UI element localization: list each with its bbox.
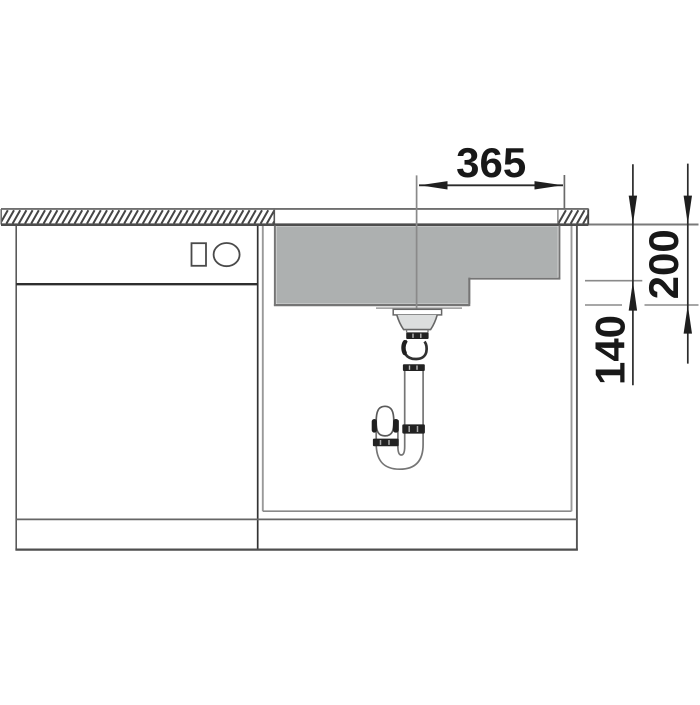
svg-text:140: 140 <box>586 315 633 385</box>
svg-text:200: 200 <box>640 229 687 299</box>
svg-text:365: 365 <box>456 139 526 186</box>
